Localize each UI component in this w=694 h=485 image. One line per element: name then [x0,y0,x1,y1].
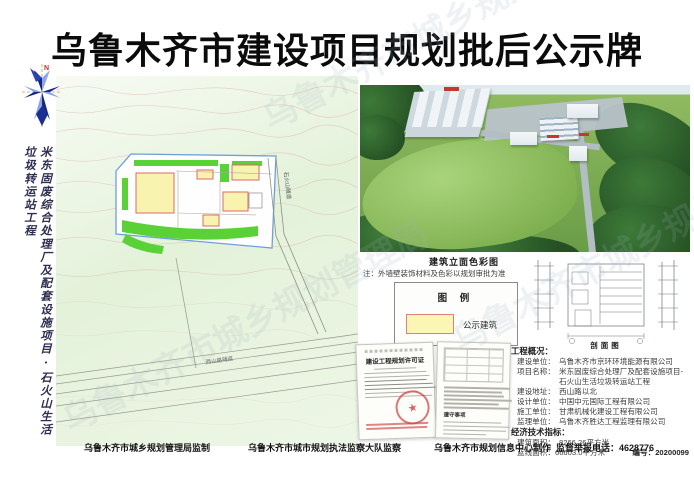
plant-building [405,88,491,132]
info-field: 施工单位：甘肃机械化建设工程有限公司 [511,407,693,417]
sign [547,135,559,138]
planning-permit-document: 建设工程规划许可证 ★ [355,342,436,441]
info-field: 建设地址：西山路以北 [511,387,693,397]
project-vertical-title: 米东固废综合处理厂及配套设施项目·石火山生活垃圾转运站工程 [22,146,54,446]
canopy-building [567,104,598,118]
footer-credit-inspection: 乌鲁木齐市城市规划执法监察大队监察 [248,441,401,454]
legend-swatch [406,314,454,334]
legend-title: 图 例 [395,290,517,304]
notice-board: 乌鲁木齐市城乡规划管理局 乌鲁木齐市城乡规划管理局 乌鲁木齐市城乡规划管理局 乌… [0,0,694,485]
permit-notes-heading: 遵守事项 [443,410,501,419]
permit-table [443,347,504,382]
footer-credit-producer: 乌鲁木齐市规划信息中心制作 [434,441,551,454]
office-building [539,116,578,141]
contour-lines [56,86,358,427]
indicators-heading: 经济技术指标： [511,427,693,438]
info-heading: 工程概况： [511,346,693,357]
legend-item-label: 公示建筑 [463,319,497,331]
sign [579,133,589,136]
plant-sign [444,87,459,91]
site-plan-map: 石火山隧道 西山路辅道 [56,76,358,446]
auxiliary-building [249,193,262,208]
info-field: 建设单位：乌鲁木齐市京环环境能源有限公司 [511,357,693,367]
footer-report-hotline: 监督举报电话：4628776 [556,441,654,454]
aerial-rendering [360,85,690,252]
page-title: 乌鲁木齐市建设项目规划批后公示牌 [0,22,694,74]
rendering-caption: 建筑立面色彩图 [404,255,524,268]
info-field: 监理单位：乌鲁木齐胜达工程监理有限公司 [511,417,693,427]
footer-credit-supervisor: 乌鲁木齐市城乡规划管理局监制 [84,441,210,454]
section-drawing: 剖面图 [520,252,692,350]
info-field: 设计单位：中国中元国际工程有限公司 [511,397,693,407]
small-building [510,132,537,145]
road-right-label: 石火山隧道 [282,171,293,200]
road-bottom-label: 西山路辅道 [205,354,234,366]
compass-icon: N [20,62,64,130]
trees [588,205,690,252]
permit-title: 建设工程规划许可证 [357,354,433,367]
uyghur-script-line [365,348,425,353]
rendering-note: 注：外墙壁装饰材料及色彩以规划审批为准 [363,268,506,279]
permit-detail-document: 遵守事项 [435,341,511,440]
legend-box: 图 例 公示建筑 [394,282,518,346]
gate-building [569,146,587,161]
compass-north-label: N [44,65,49,72]
plant-building-side [405,127,482,137]
info-field: 项目名称：米东固废综合处理厂及配套设施项目-石火山生活垃圾转运站工程 [511,367,693,387]
